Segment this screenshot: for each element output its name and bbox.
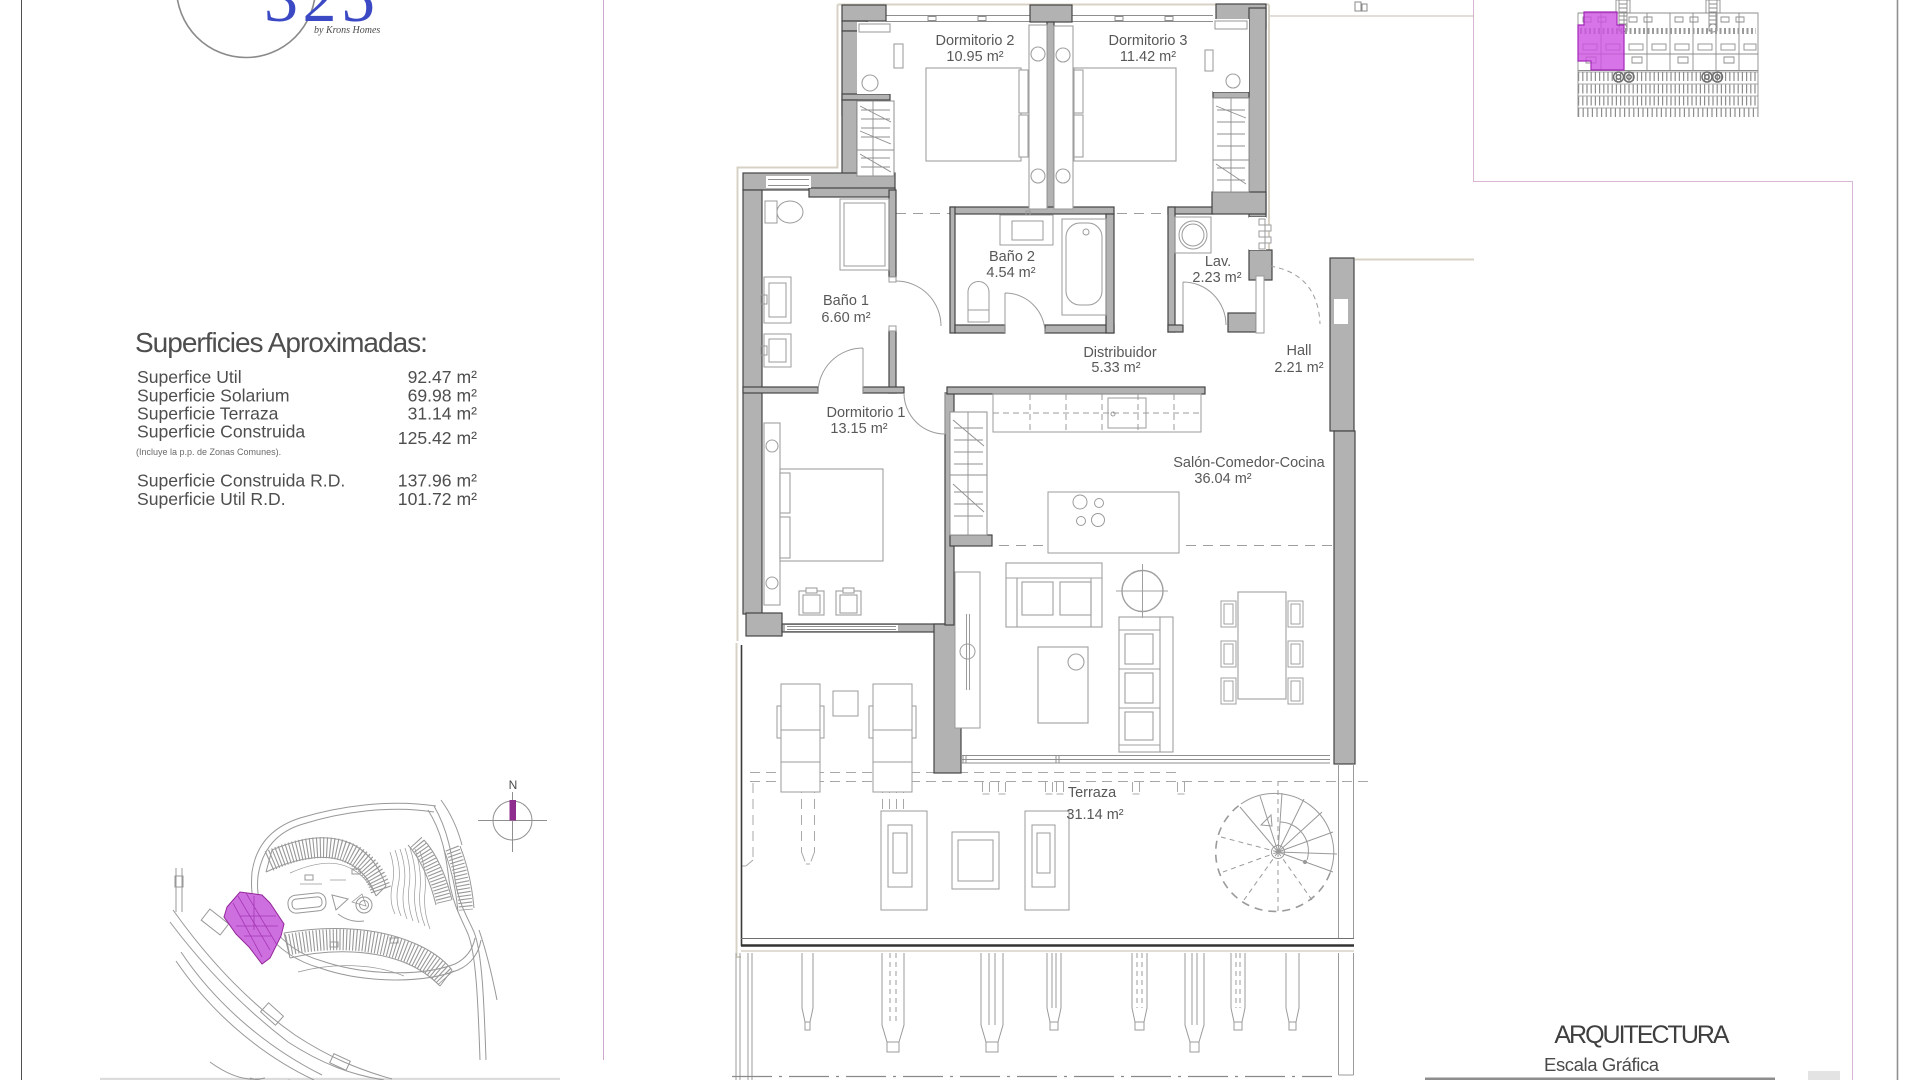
svg-text:2.21 m²: 2.21 m²	[1274, 360, 1323, 376]
svg-text:Baño 2: Baño 2	[989, 249, 1035, 265]
svg-text:31.14 m²: 31.14 m²	[408, 404, 478, 424]
svg-text:Escala Gráfica: Escala Gráfica	[1544, 1054, 1660, 1075]
svg-text:Lav.: Lav.	[1205, 254, 1231, 270]
svg-text:11.42 m²: 11.42 m²	[1120, 49, 1176, 65]
svg-text:Superficie Terraza: Superficie Terraza	[137, 404, 279, 424]
svg-text:5.33 m²: 5.33 m²	[1091, 360, 1140, 376]
svg-text:69.98 m²: 69.98 m²	[408, 386, 478, 406]
svg-text:6.60 m²: 6.60 m²	[821, 310, 870, 326]
svg-text:101.72 m²: 101.72 m²	[398, 489, 477, 509]
svg-text:Superficie Construida: Superficie Construida	[137, 422, 305, 442]
svg-text:10.95 m²: 10.95 m²	[946, 49, 1003, 65]
svg-text:125.42 m²: 125.42 m²	[398, 428, 477, 448]
svg-text:N: N	[509, 778, 518, 792]
svg-text:Superficies Aproximadas:: Superficies Aproximadas:	[135, 327, 427, 358]
svg-text:(Incluye la p.p. de Zonas Comu: (Incluye la p.p. de Zonas Comunes).	[136, 447, 281, 457]
svg-text:Dormitorio 1: Dormitorio 1	[827, 405, 906, 421]
svg-text:36.04 m²: 36.04 m²	[1194, 471, 1251, 487]
svg-text:Baño 1: Baño 1	[823, 293, 869, 309]
svg-text:Dormitorio 3: Dormitorio 3	[1109, 33, 1188, 49]
svg-text:Superfice Util: Superfice Util	[137, 367, 242, 387]
svg-text:Salón-Comedor-Cocina: Salón-Comedor-Cocina	[1173, 455, 1325, 471]
svg-text:Hall: Hall	[1287, 343, 1312, 359]
svg-text:Distribuidor: Distribuidor	[1083, 345, 1156, 361]
svg-text:by Krons Homes: by Krons Homes	[314, 25, 380, 36]
svg-text:Superficie Solarium: Superficie Solarium	[137, 386, 290, 406]
svg-text:137.96 m²: 137.96 m²	[398, 471, 477, 491]
svg-text:92.47 m²: 92.47 m²	[408, 367, 478, 387]
svg-text:4.54 m²: 4.54 m²	[986, 265, 1035, 281]
svg-text:Dormitorio 2: Dormitorio 2	[936, 33, 1015, 49]
svg-text:Superficie Util R.D.: Superficie Util R.D.	[137, 489, 286, 509]
svg-text:Terraza: Terraza	[1068, 785, 1117, 801]
svg-text:31.14 m²: 31.14 m²	[1066, 807, 1123, 823]
svg-text:2.23 m²: 2.23 m²	[1192, 270, 1241, 286]
svg-text:13.15 m²: 13.15 m²	[830, 421, 887, 437]
svg-text:Superficie Construida R.D.: Superficie Construida R.D.	[137, 471, 345, 491]
svg-text:ARQUITECTURA: ARQUITECTURA	[1554, 1021, 1730, 1049]
